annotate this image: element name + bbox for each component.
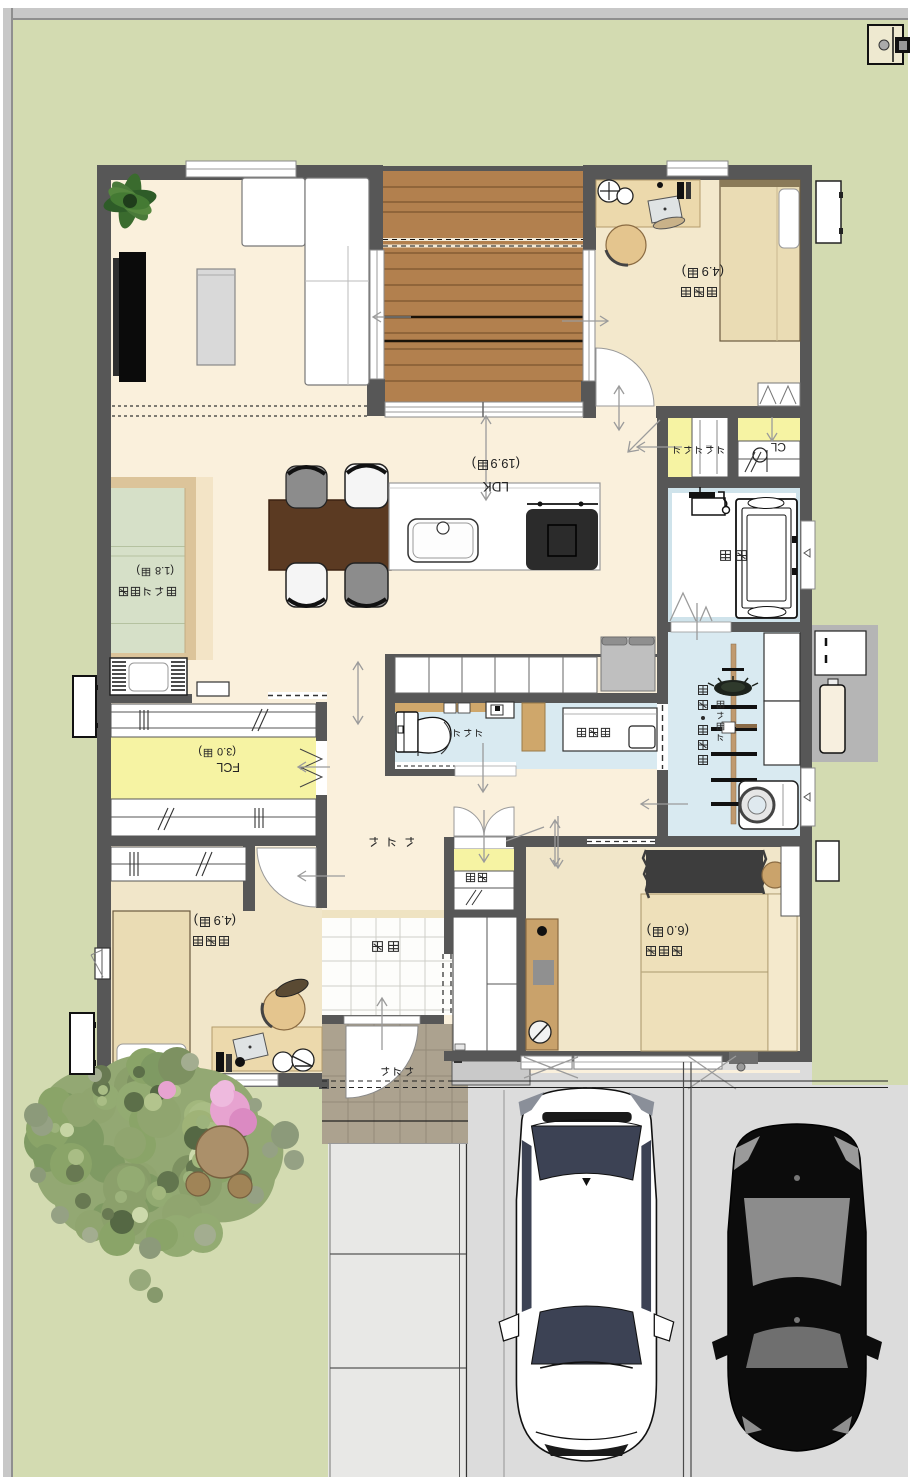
svg-text:(19.9: (19.9 bbox=[490, 456, 520, 471]
svg-text:(4.9: (4.9 bbox=[214, 913, 236, 928]
svg-text:FCL: FCL bbox=[216, 760, 240, 774]
svg-text:LDK: LDK bbox=[483, 479, 509, 494]
svg-text:(4.9: (4.9 bbox=[702, 264, 724, 279]
svg-text:): ) bbox=[198, 745, 202, 757]
svg-text:(1.8: (1.8 bbox=[155, 564, 174, 576]
svg-text:CL: CL bbox=[770, 440, 786, 454]
svg-text:): ) bbox=[136, 564, 140, 576]
svg-text:): ) bbox=[647, 923, 651, 938]
svg-text:(6.0: (6.0 bbox=[667, 923, 689, 938]
svg-text:): ) bbox=[682, 264, 686, 279]
svg-text:): ) bbox=[194, 913, 198, 928]
svg-text:(3.0: (3.0 bbox=[217, 745, 236, 757]
svg-text:): ) bbox=[472, 456, 476, 471]
